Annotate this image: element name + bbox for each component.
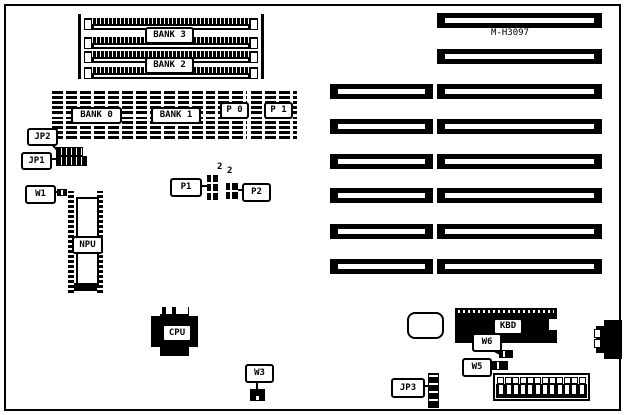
w6-text: W6 — [482, 338, 493, 347]
jumper-w6-label: W6 — [472, 333, 502, 352]
jp2-text: JP2 — [34, 133, 50, 142]
callout-pointer-lines — [0, 0, 626, 415]
dram-bank0-text: BANK 0 — [80, 111, 113, 120]
dram-parity1-label: P 1 — [264, 102, 293, 119]
dram-bank1-text: BANK 1 — [160, 111, 193, 120]
jumper-w3-label: W3 — [245, 364, 274, 383]
simm-bank2-label: BANK 2 — [145, 57, 194, 74]
kbd-text: KBD — [500, 322, 516, 331]
p2-pin-count: 2 — [227, 166, 232, 176]
dram-bank1-label: BANK 1 — [151, 107, 201, 124]
jumper-jp2-label: JP2 — [27, 128, 58, 146]
simm-bank3-label: BANK 3 — [145, 27, 194, 44]
p1-text: P1 — [181, 183, 192, 192]
dram-bank0-label: BANK 0 — [71, 107, 122, 124]
dram-parity0-text: P 0 — [226, 106, 242, 115]
jp3-text: JP3 — [400, 384, 416, 393]
w3-text: W3 — [254, 369, 265, 378]
jp1-text: JP1 — [28, 157, 44, 166]
w5-text: W5 — [472, 363, 483, 372]
jumper-w1-label: W1 — [25, 185, 56, 204]
simm-bank2-text: BANK 2 — [153, 61, 186, 70]
p1-pin-count: 2 — [217, 162, 222, 172]
jumper-w5-label: W5 — [462, 358, 492, 377]
w1-text: W1 — [35, 190, 46, 199]
p2-text: P2 — [251, 188, 262, 197]
dram-parity1-text: P 1 — [270, 106, 286, 115]
cpu-text: CPU — [169, 329, 185, 338]
jumper-jp1-label: JP1 — [21, 152, 52, 170]
jumper-p1-label: P1 — [170, 178, 202, 197]
npu-text: NPU — [79, 241, 95, 250]
simm-bank3-text: BANK 3 — [153, 31, 186, 40]
jumper-p2-label: P2 — [242, 183, 271, 202]
dram-parity0-label: P 0 — [220, 102, 249, 119]
npu-label: NPU — [72, 236, 103, 254]
jumper-jp3-label: JP3 — [391, 378, 425, 398]
cpu-label: CPU — [162, 324, 192, 342]
motherboard-diagram: BANK 3 BANK 2 BANK 0 BANK 1 P 0 P 1 JP2 … — [0, 0, 626, 415]
